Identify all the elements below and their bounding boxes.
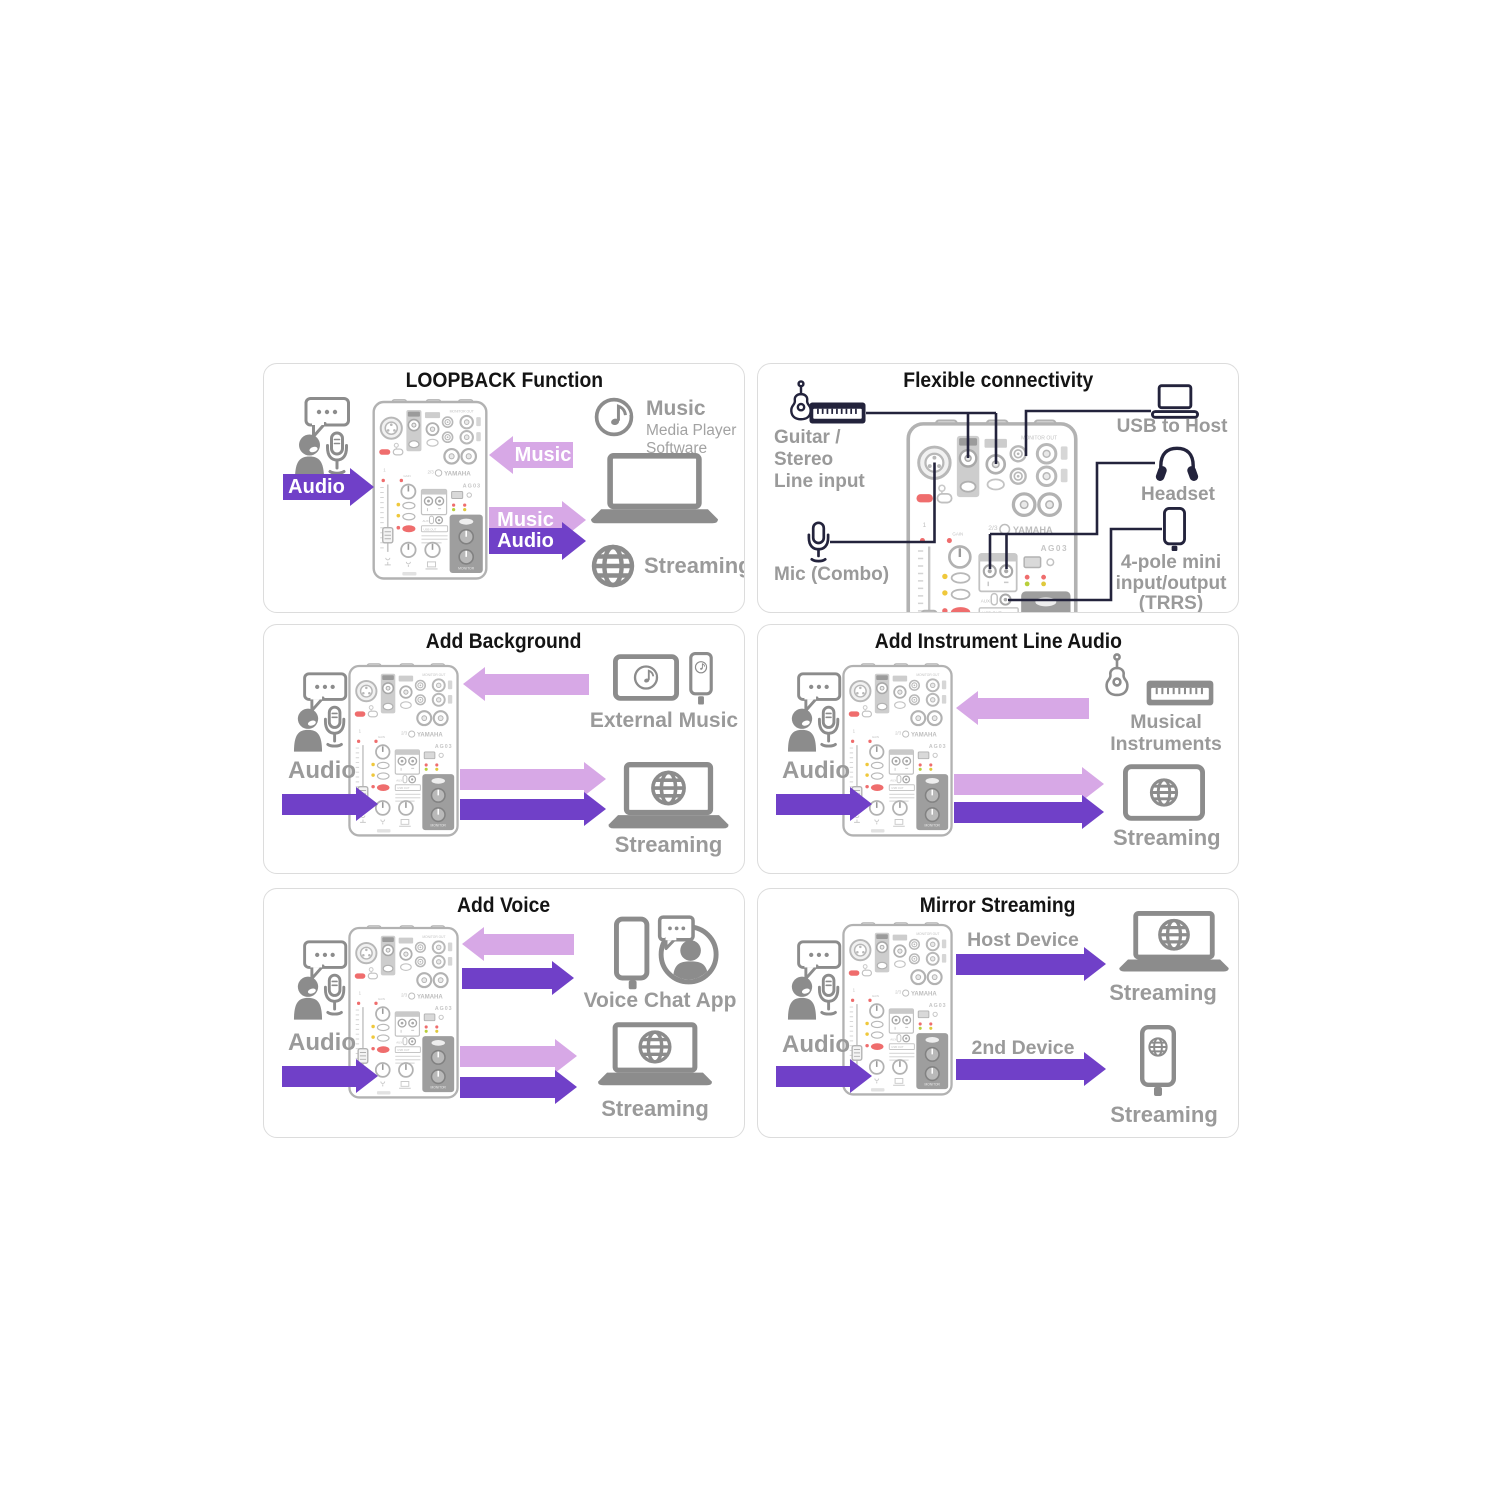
streaming-laptop-icon: [1119, 911, 1229, 973]
audio-arrow: [282, 1059, 378, 1093]
host-device-arrow: [956, 947, 1106, 981]
person-mic-icon: [787, 940, 847, 1020]
music-in-arrow-label: Music: [513, 442, 573, 468]
panel-loopback: LOOPBACK Function Audio Music Music Medi…: [263, 363, 745, 613]
audio-out-arrow-label: Audio: [489, 528, 562, 554]
guitar-label-line3: Line input: [774, 471, 865, 493]
trrs-phone-icon: [1163, 507, 1186, 551]
panel-add-voice: Add Voice Audio Voice Chat App Streaming: [263, 888, 745, 1138]
panel-mirror-streaming: Mirror Streaming Audio Host Device Strea…: [757, 888, 1239, 1138]
audio-arrow: [282, 787, 378, 821]
stream-music-arrow: [460, 762, 606, 796]
audio-out-arrow: Audio: [489, 522, 586, 560]
streaming-host-label: Streaming: [1108, 980, 1218, 1006]
usb-host-label: USB to Host: [1111, 416, 1233, 438]
trrs-label-line2: input/output: [1088, 573, 1239, 595]
voice-in-arrow: [462, 927, 574, 961]
voice-out-arrow: [462, 961, 574, 995]
audio-arrow: [776, 787, 872, 821]
streaming-label: Streaming: [1113, 825, 1213, 851]
panel-title: Flexible connectivity: [758, 369, 1238, 393]
tablet-music-icon: [613, 654, 679, 701]
music-app-icon: [594, 397, 634, 437]
streaming-globe-icon: [591, 544, 635, 588]
arrow-head: [1082, 795, 1104, 829]
headset-label: Headset: [1141, 484, 1215, 506]
mixer-illustration: [372, 399, 488, 580]
audio-label: Audio: [766, 1031, 866, 1059]
headset-icon: [1155, 444, 1199, 484]
arrow-head: [356, 787, 378, 821]
stream-music-arrow: [460, 1039, 577, 1073]
arrow-head: [956, 691, 978, 725]
streaming-second-label: Streaming: [1110, 1102, 1218, 1128]
streaming-phone-icon: [1140, 1025, 1176, 1097]
phone-music-icon: [689, 652, 713, 707]
arrow-head: [555, 1039, 577, 1073]
streaming-laptop-icon: [598, 1022, 712, 1087]
instruments-label-line1: Musical: [1106, 711, 1226, 734]
stream-audio-arrow: [460, 1070, 577, 1104]
stream-audio-arrow: [460, 792, 606, 826]
mixer-illustration-zoomed: [906, 419, 1078, 613]
host-device-label: Host Device: [958, 929, 1088, 952]
trrs-label-line1: 4-pole mini: [1088, 552, 1239, 574]
mic-icon: [806, 521, 831, 564]
keyboard-icon: [1139, 680, 1221, 706]
arrow-head: [850, 1059, 872, 1093]
instrument-arrow: [956, 691, 1089, 725]
arrow-head: [1084, 947, 1106, 981]
music-app-label: Music: [646, 397, 706, 421]
arrow-head: [555, 1070, 577, 1104]
mic-label: Mic (Combo): [774, 564, 889, 586]
panel-title: Add Voice: [264, 894, 744, 918]
panel-add-instrument: Add Instrument Line Audio Audio Musical …: [757, 624, 1239, 874]
voice-chat-icon: [614, 913, 722, 990]
audio-in-arrow: Audio: [283, 468, 374, 506]
person-mic-icon: [294, 397, 356, 479]
arrow-head: [462, 927, 484, 961]
panel-title: Mirror Streaming: [758, 894, 1238, 918]
panel-title: Add Instrument Line Audio: [758, 630, 1238, 654]
arrow-head: [584, 792, 606, 826]
music-app-sub2: Software: [646, 440, 707, 458]
person-mic-icon: [293, 672, 353, 752]
arrow-head: [584, 762, 606, 796]
streaming-label: Streaming: [598, 1096, 712, 1122]
arrow-head: [489, 436, 513, 474]
arrow-head: [562, 522, 586, 560]
panel-add-background: Add Background Audio External Music Stre…: [263, 624, 745, 874]
panel-title: Add Background: [264, 630, 744, 654]
arrow-head: [850, 787, 872, 821]
laptop-icon: [591, 453, 718, 525]
audio-in-arrow-label: Audio: [283, 474, 350, 500]
guitar-label-line1: Guitar /: [774, 427, 841, 449]
streaming-laptop-icon: [608, 762, 729, 830]
audio-label: Audio: [272, 1029, 372, 1057]
audio-arrow: [776, 1059, 872, 1093]
streaming-tablet-icon: [1123, 764, 1205, 821]
instruments-label-line2: Instruments: [1106, 733, 1226, 756]
trrs-label-line3: (TRRS): [1088, 593, 1239, 613]
music-in-arrow: Music: [489, 436, 573, 474]
person-mic-icon: [787, 672, 847, 752]
arrow-head: [356, 1059, 378, 1093]
arrow-head: [350, 468, 374, 506]
voice-chat-label: Voice Chat App: [564, 989, 745, 1013]
external-music-arrow: [463, 667, 589, 701]
stream-audio-arrow: [954, 795, 1104, 829]
streaming-label: Streaming: [644, 553, 745, 579]
panel-title: LOOPBACK Function: [264, 369, 744, 393]
music-app-sub1: Media Player: [646, 422, 736, 440]
guitar-icon: [1102, 649, 1132, 705]
external-music-label: External Music: [589, 709, 739, 733]
streaming-label: Streaming: [608, 832, 729, 858]
audio-label: Audio: [272, 757, 372, 785]
arrow-head: [463, 667, 485, 701]
audio-label: Audio: [766, 757, 866, 785]
keyboard-icon: [809, 402, 866, 424]
person-mic-icon: [293, 940, 353, 1020]
second-device-label: 2nd Device: [958, 1037, 1088, 1060]
guitar-label-line2: Stereo: [774, 449, 833, 471]
panel-connectivity: Flexible connectivity Guitar / Stereo Li…: [757, 363, 1239, 613]
diagram-canvas: MONITOR OUT: [0, 0, 1500, 1500]
